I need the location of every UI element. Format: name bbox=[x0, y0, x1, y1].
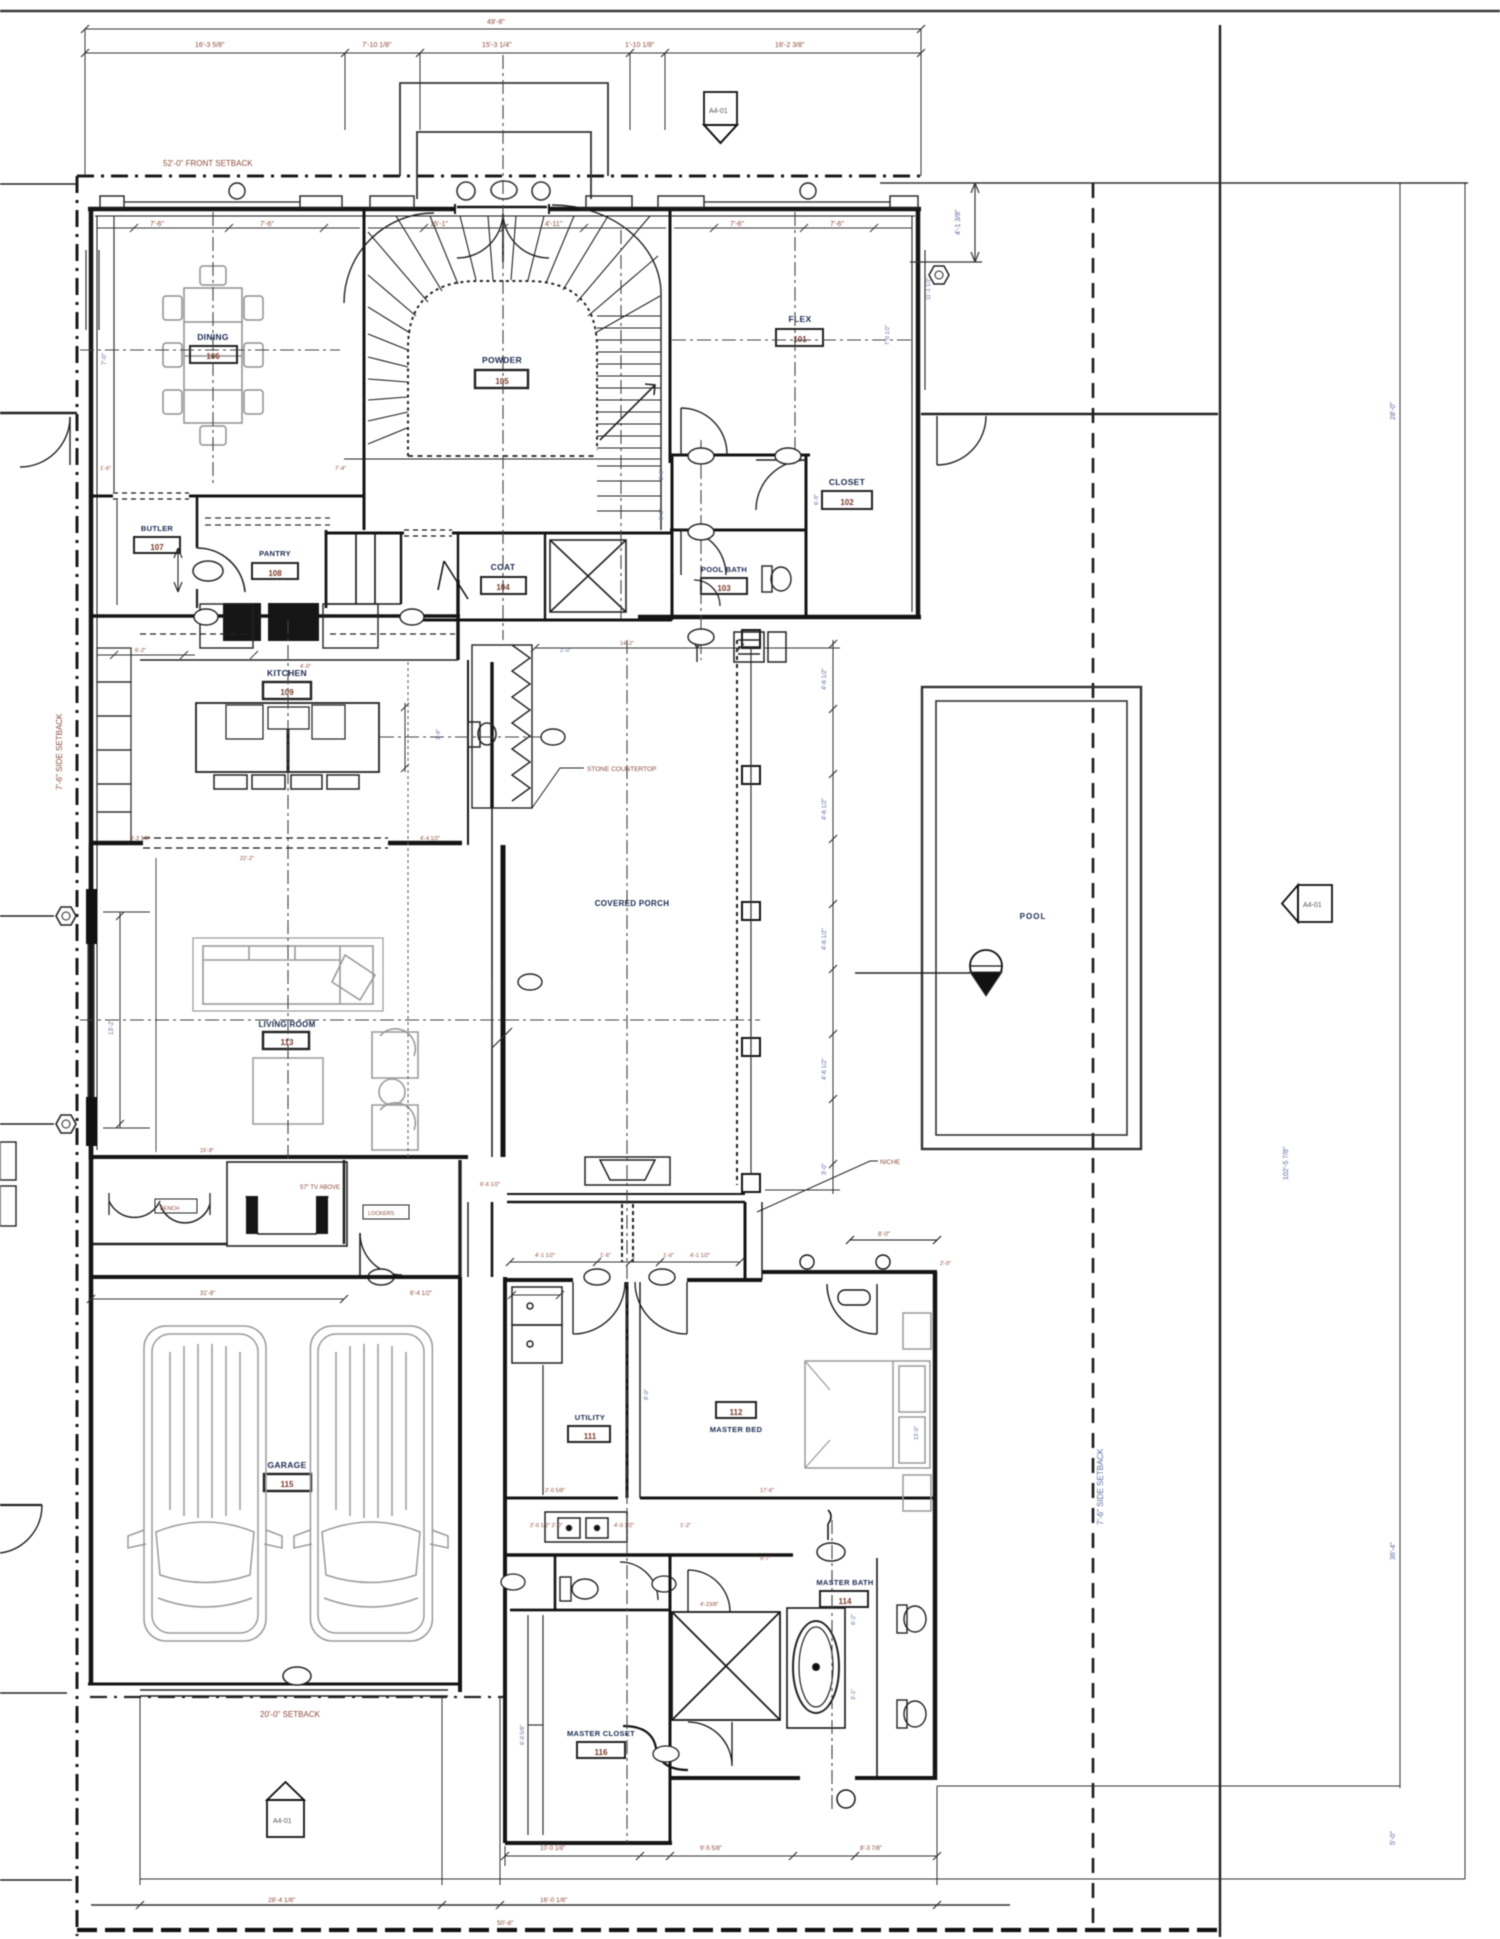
svg-text:LOCKERS: LOCKERS bbox=[368, 1211, 395, 1217]
svg-text:52'-0" FRONT SETBACK: 52'-0" FRONT SETBACK bbox=[163, 159, 253, 168]
svg-text:CLOSET: CLOSET bbox=[829, 477, 866, 487]
svg-text:115: 115 bbox=[281, 1480, 294, 1489]
svg-text:POOL BATH: POOL BATH bbox=[701, 565, 747, 574]
svg-text:2'-0": 2'-0" bbox=[940, 1261, 951, 1267]
svg-text:FLEX: FLEX bbox=[789, 314, 812, 324]
svg-text:4'-1 1/2": 4'-1 1/2" bbox=[690, 1253, 710, 1259]
svg-text:LIVING ROOM: LIVING ROOM bbox=[258, 1020, 315, 1029]
svg-text:11'-1 1/2": 11'-1 1/2" bbox=[926, 277, 932, 300]
svg-text:50'-8": 50'-8" bbox=[497, 1920, 514, 1927]
svg-text:16'-3 5/8": 16'-3 5/8" bbox=[195, 42, 225, 49]
svg-text:POOL: POOL bbox=[1020, 912, 1047, 921]
svg-text:8'-3 7/8": 8'-3 7/8" bbox=[860, 1846, 882, 1852]
svg-text:4'-6 1/2": 4'-6 1/2" bbox=[822, 1058, 828, 1080]
svg-text:2'-0 5/8": 2'-0 5/8" bbox=[545, 1488, 565, 1494]
svg-text:7'-0 1/2": 7'-0 1/2" bbox=[885, 325, 891, 345]
svg-text:4'-11": 4'-11" bbox=[545, 221, 563, 228]
svg-text:4'-23/8": 4'-23/8" bbox=[700, 1602, 719, 1608]
svg-text:31'-8": 31'-8" bbox=[200, 1291, 215, 1297]
svg-text:COVERED PORCH: COVERED PORCH bbox=[595, 899, 670, 908]
svg-text:A4-01: A4-01 bbox=[1303, 902, 1322, 909]
svg-text:8'-0": 8'-0" bbox=[644, 1389, 650, 1400]
svg-text:49'-8": 49'-8" bbox=[487, 19, 505, 26]
svg-text:A4-01: A4-01 bbox=[709, 108, 728, 115]
svg-text:13'-2": 13'-2" bbox=[109, 1020, 115, 1035]
svg-text:NICHE: NICHE bbox=[880, 1159, 901, 1166]
svg-text:28'-0": 28'-0" bbox=[1390, 402, 1397, 420]
svg-text:15'-3 1/4": 15'-3 1/4" bbox=[482, 42, 512, 49]
svg-text:17'-6": 17'-6" bbox=[760, 1488, 774, 1494]
svg-text:116: 116 bbox=[595, 1748, 608, 1757]
svg-text:7'-6" SIDE SETBACK: 7'-6" SIDE SETBACK bbox=[1096, 1448, 1105, 1525]
svg-text:4'-6 1/2": 4'-6 1/2" bbox=[822, 798, 828, 820]
svg-text:2'-0 1/2" 2'-0": 2'-0 1/2" 2'-0" bbox=[530, 1523, 563, 1529]
svg-text:4'-0 1/2": 4'-0 1/2" bbox=[614, 1523, 634, 1529]
svg-text:109: 109 bbox=[280, 688, 294, 697]
svg-text:PANTRY: PANTRY bbox=[259, 549, 291, 558]
svg-text:102'-5 7/8": 102'-5 7/8" bbox=[1283, 1146, 1290, 1180]
svg-text:7'-6" SIDE SETBACK: 7'-6" SIDE SETBACK bbox=[55, 713, 64, 790]
svg-text:BENCH: BENCH bbox=[160, 1206, 179, 1212]
svg-text:36'-4": 36'-4" bbox=[1390, 1542, 1397, 1560]
svg-text:4'-1 1/2": 4'-1 1/2" bbox=[535, 1253, 555, 1259]
svg-text:A4-01: A4-01 bbox=[273, 1818, 292, 1825]
svg-text:4'-6 1/2": 4'-6 1/2" bbox=[822, 928, 828, 950]
svg-text:102: 102 bbox=[840, 498, 854, 507]
svg-text:10'-0 1/8": 10'-0 1/8" bbox=[540, 1846, 565, 1852]
svg-text:1'-6": 1'-6" bbox=[663, 1253, 674, 1259]
svg-text:7'-6": 7'-6" bbox=[150, 221, 164, 228]
svg-text:MASTER CLOSET: MASTER CLOSET bbox=[567, 1729, 635, 1738]
svg-text:7'-4": 7'-4" bbox=[335, 466, 346, 472]
svg-text:4'-3 1/2": 4'-3 1/2" bbox=[130, 836, 150, 842]
svg-text:15'-1": 15'-1" bbox=[430, 221, 448, 228]
svg-text:16'-2 3/8": 16'-2 3/8" bbox=[775, 42, 805, 49]
svg-text:GARAGE: GARAGE bbox=[267, 1460, 306, 1470]
svg-text:STONE COUNTERTOP: STONE COUNTERTOP bbox=[587, 766, 656, 773]
svg-text:16'-0 1/8": 16'-0 1/8" bbox=[540, 1897, 568, 1904]
svg-text:6'-0 5/8": 6'-0 5/8" bbox=[520, 1725, 526, 1745]
svg-text:107: 107 bbox=[150, 543, 164, 552]
svg-text:3'-9": 3'-9" bbox=[436, 729, 442, 740]
svg-text:105: 105 bbox=[495, 377, 509, 386]
svg-text:22'-2": 22'-2" bbox=[240, 856, 254, 862]
svg-text:9'-5 5/8": 9'-5 5/8" bbox=[700, 1846, 722, 1852]
svg-text:1'-6": 1'-6" bbox=[100, 466, 111, 472]
svg-text:13'-0": 13'-0" bbox=[914, 1426, 920, 1440]
svg-text:8'-0": 8'-0" bbox=[878, 1232, 890, 1238]
svg-text:108: 108 bbox=[268, 569, 282, 578]
svg-text:6'-9": 6'-9" bbox=[814, 494, 820, 505]
svg-text:28'-4 1/8": 28'-4 1/8" bbox=[268, 1897, 296, 1904]
svg-text:111: 111 bbox=[584, 1432, 597, 1441]
svg-text:103: 103 bbox=[717, 584, 731, 593]
svg-text:7'-6": 7'-6" bbox=[830, 221, 844, 228]
svg-text:3'-0": 3'-0" bbox=[822, 1163, 828, 1175]
svg-text:7'-6": 7'-6" bbox=[730, 221, 744, 228]
svg-text:57" TV ABOVE: 57" TV ABOVE bbox=[300, 1185, 340, 1191]
svg-text:1'-10 1/8": 1'-10 1/8" bbox=[625, 42, 655, 49]
svg-text:7'-6": 7'-6" bbox=[260, 221, 274, 228]
svg-text:2'-6": 2'-6" bbox=[659, 469, 665, 480]
svg-text:1'-2": 1'-2" bbox=[680, 1523, 691, 1529]
svg-text:UTILITY: UTILITY bbox=[575, 1413, 605, 1422]
svg-text:113: 113 bbox=[281, 1038, 294, 1047]
svg-text:6'-4 1/2": 6'-4 1/2" bbox=[410, 1291, 432, 1297]
svg-text:MASTER BED: MASTER BED bbox=[710, 1425, 763, 1434]
svg-text:6'-6 1/2": 6'-6 1/2" bbox=[480, 1182, 500, 1188]
svg-text:BUTLER: BUTLER bbox=[141, 524, 173, 533]
svg-text:POWDER: POWDER bbox=[482, 355, 522, 365]
svg-text:5'-0": 5'-0" bbox=[1390, 1831, 1397, 1845]
svg-text:6'-2": 6'-2" bbox=[135, 648, 146, 654]
svg-text:9'-7": 9'-7" bbox=[760, 1556, 771, 1562]
svg-text:7'-10 1/8": 7'-10 1/8" bbox=[362, 42, 392, 49]
svg-text:4'-1 3/8": 4'-1 3/8" bbox=[955, 209, 962, 235]
svg-text:5'-0": 5'-0" bbox=[659, 509, 665, 520]
svg-text:20'-0" SETBACK: 20'-0" SETBACK bbox=[260, 1710, 321, 1719]
svg-text:4'-4 1/2": 4'-4 1/2" bbox=[420, 836, 440, 842]
svg-text:15'-8": 15'-8" bbox=[200, 1148, 214, 1154]
svg-text:6'-2": 6'-2" bbox=[851, 1614, 857, 1625]
svg-text:4'-6 1/2": 4'-6 1/2" bbox=[822, 668, 828, 690]
svg-text:7'-0": 7'-0" bbox=[102, 353, 108, 365]
svg-text:1'-6": 1'-6" bbox=[600, 1253, 611, 1259]
svg-text:3'-1": 3'-1" bbox=[851, 1689, 857, 1700]
svg-text:MASTER BATH: MASTER BATH bbox=[816, 1578, 873, 1587]
svg-text:4'-0": 4'-0" bbox=[300, 664, 311, 670]
svg-text:2'-0": 2'-0" bbox=[560, 648, 571, 654]
svg-text:114: 114 bbox=[839, 1597, 852, 1606]
svg-text:112: 112 bbox=[730, 1408, 743, 1417]
